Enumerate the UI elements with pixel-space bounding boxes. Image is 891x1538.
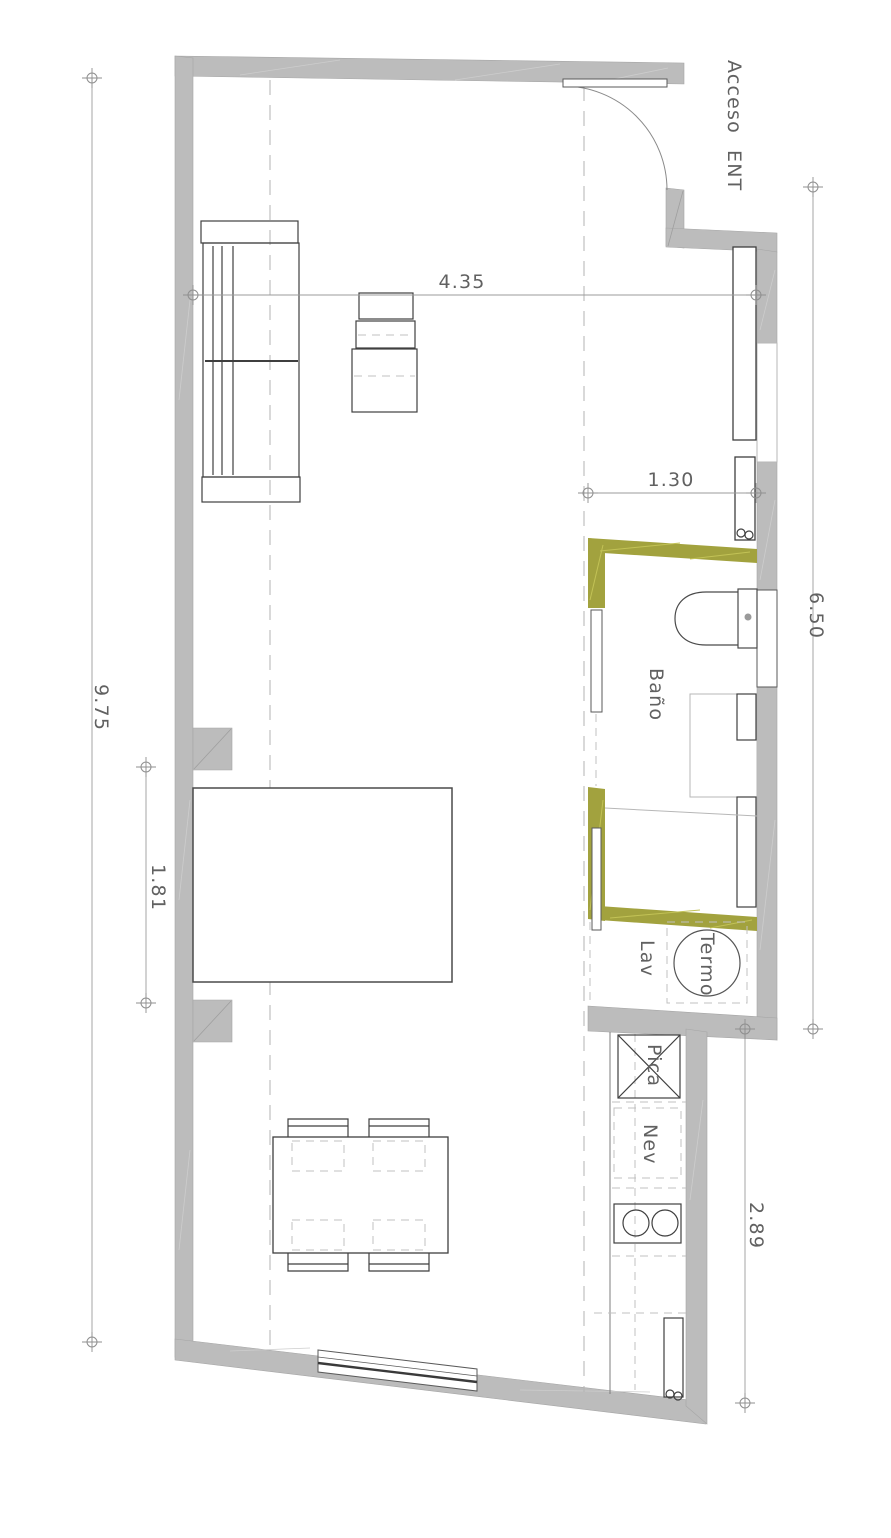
dim-text-1-30: 1.30	[647, 469, 694, 491]
entry-door	[563, 79, 667, 190]
kitchen	[594, 1032, 686, 1400]
water-heater-label: Termo	[696, 932, 718, 997]
floor-plan-canvas: Acceso ENT 4.35 1.30 6.50 9.75 1.81 2.89…	[0, 0, 891, 1538]
hall-cabinet	[735, 457, 755, 540]
toilet-flush-button	[745, 614, 752, 621]
dim-marker	[136, 757, 156, 777]
sofa-armrest-top	[201, 221, 298, 243]
kitchen-side-wall	[686, 1029, 707, 1424]
dim-marker	[136, 993, 156, 1013]
nest-tables	[352, 293, 417, 412]
bed	[193, 788, 452, 982]
cooktop-burner	[652, 1210, 678, 1236]
laundry-zone	[590, 922, 747, 1006]
entrance-label-line2: ENT	[723, 150, 745, 191]
bath-door-leaf-lower	[592, 828, 601, 930]
bath-floor-edge	[605, 808, 757, 816]
chair-top-left	[288, 1119, 348, 1137]
bath-door-leaf-upper	[591, 610, 602, 712]
dim-marker	[578, 483, 598, 503]
dim-text-9-75: 9.75	[90, 684, 112, 731]
right-wall-niche	[757, 343, 777, 462]
dim-text-6-50: 6.50	[805, 592, 827, 639]
dim-marker	[82, 1332, 102, 1352]
vanity-counter	[690, 694, 757, 797]
chair-bottom-right	[369, 1253, 429, 1271]
wardrobe	[733, 247, 756, 440]
dim-text-2-89: 2.89	[745, 1202, 767, 1249]
entry-corner-wall-horizontal	[666, 228, 777, 252]
wall-right-mid	[757, 462, 777, 590]
wall-left	[175, 56, 193, 1357]
dining-table	[273, 1137, 448, 1253]
walls	[175, 56, 777, 1424]
laundry-label: Lav	[636, 940, 658, 977]
sink-label: Pica	[643, 1044, 665, 1087]
bath-cabinet-upper	[737, 694, 756, 740]
chair-top-right	[369, 1119, 429, 1137]
nest-table-small	[359, 293, 413, 319]
bath-wall-bottom	[599, 906, 757, 931]
bathroom-doors	[591, 610, 602, 930]
wall-right-lower	[757, 687, 777, 1040]
wall-hatch-lines	[179, 60, 775, 1392]
floor-plan-drawing: Acceso ENT 4.35 1.30 6.50 9.75 1.81 2.89…	[0, 0, 891, 1538]
sofa-armrest-bottom	[202, 477, 300, 502]
dining-set	[273, 1119, 448, 1271]
nest-table-large	[352, 349, 417, 412]
bathroom-label: Baño	[645, 668, 667, 721]
sofa	[201, 221, 300, 502]
entry-door-swing-arc	[563, 86, 667, 190]
bath-cabinet-lower	[737, 797, 756, 907]
radiator	[664, 1318, 683, 1397]
dim-text-4-35: 4.35	[438, 271, 485, 293]
window-right	[757, 590, 777, 687]
chair-bottom-left	[288, 1253, 348, 1271]
bathroom-fixtures	[605, 589, 757, 907]
dim-text-1-81: 1.81	[147, 864, 169, 911]
entry-door-leaf	[563, 79, 667, 87]
dim-marker	[803, 177, 823, 197]
dim-marker	[735, 1393, 755, 1413]
dim-marker	[803, 1019, 823, 1039]
dim-marker	[82, 68, 102, 88]
toilet-bowl	[675, 592, 740, 645]
cooktop	[614, 1204, 681, 1243]
fridge-label: Nev	[639, 1124, 661, 1165]
entrance-label-line1: Acceso	[723, 60, 745, 134]
bath-wall-top	[588, 538, 757, 563]
cooktop-burner	[623, 1210, 649, 1236]
service-wall	[588, 1006, 777, 1040]
